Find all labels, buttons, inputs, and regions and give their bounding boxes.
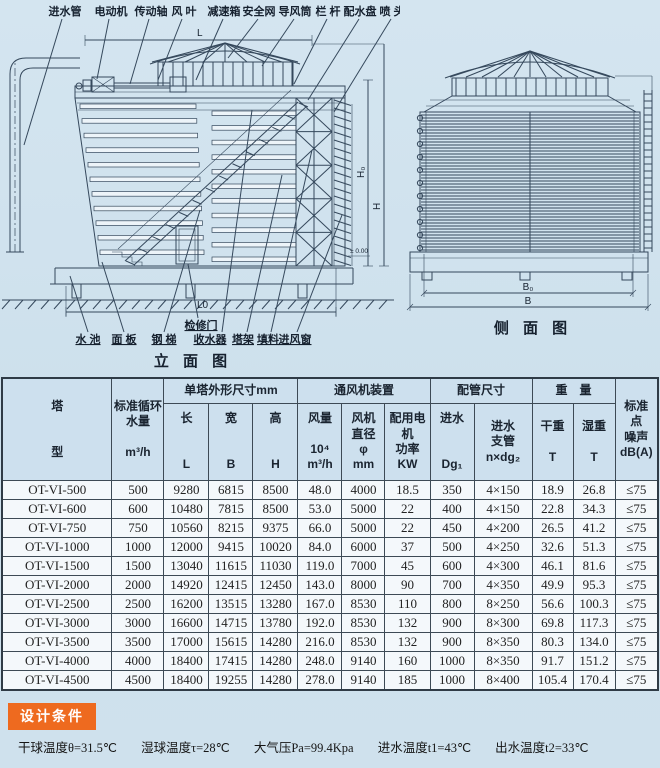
table-cell: 1000	[112, 538, 164, 557]
condition-outlet-temp: 出水温度t2=33℃	[495, 741, 588, 755]
table-cell: 132	[385, 633, 430, 652]
table-cell: 167.0	[298, 595, 342, 614]
table-cell: 350	[430, 481, 474, 500]
table-cell: 8500	[253, 481, 298, 500]
table-cell: 41.2	[573, 519, 615, 538]
table-cell: 11030	[253, 557, 298, 576]
table-cell: 56.6	[532, 595, 573, 614]
label-air-duct: 导风筒	[279, 4, 312, 18]
technical-drawings: L	[0, 0, 660, 377]
table-cell: 12000	[164, 538, 209, 557]
table-cell: ≤75	[615, 557, 658, 576]
table-cell: ≤75	[615, 538, 658, 557]
table-cell: 17415	[209, 652, 253, 671]
table-cell: OT-VI-4000	[2, 652, 112, 671]
table-cell: 9280	[164, 481, 209, 500]
table-cell: 119.0	[298, 557, 342, 576]
table-cell: 134.0	[573, 633, 615, 652]
table-cell: 7000	[342, 557, 385, 576]
group-header-piping: 配管尺寸	[430, 378, 532, 404]
table-cell: 8530	[342, 633, 385, 652]
table-cell: 18400	[164, 652, 209, 671]
col-header-fan-diameter: 风机 直径 φ mm	[342, 404, 385, 481]
table-cell: 91.7	[532, 652, 573, 671]
condition-pressure: 大气压Pa=99.4Kpa	[254, 741, 354, 755]
table-row: OT-VI-20002000149201241512450143.0800090…	[2, 576, 658, 595]
label-steel-ladder: 钢 梯	[151, 332, 176, 346]
table-cell: 48.0	[298, 481, 342, 500]
table-cell: 110	[385, 595, 430, 614]
table-cell: 14280	[253, 671, 298, 691]
table-cell: OT-VI-1000	[2, 538, 112, 557]
label-spray-nozzle: 喷 头	[379, 4, 400, 18]
group-header-weight: 重 量	[532, 378, 615, 404]
table-cell: 117.3	[573, 614, 615, 633]
table-cell: 14280	[253, 652, 298, 671]
table-cell: 100.3	[573, 595, 615, 614]
elevation-caption: 立 面 图	[154, 352, 232, 370]
table-cell: 4500	[112, 671, 164, 691]
table-cell: 5000	[342, 500, 385, 519]
table-cell: 8530	[342, 614, 385, 633]
table-cell: 15615	[209, 633, 253, 652]
condition-dry-bulb: 干球温度θ=31.5℃	[18, 741, 117, 755]
table-cell: 81.6	[573, 557, 615, 576]
table-cell: 26.8	[573, 481, 615, 500]
table-cell: 151.2	[573, 652, 615, 671]
table-cell: 18.5	[385, 481, 430, 500]
table-cell: 1000	[430, 671, 474, 691]
table-cell: 51.3	[573, 538, 615, 557]
table-cell: 6000	[342, 538, 385, 557]
label-air-inlet: 进风窗	[279, 332, 312, 346]
col-header-inlet: 进水 Dg₁	[430, 404, 474, 481]
level-mark: ± 0.00	[350, 248, 368, 255]
label-panel: 面 板	[111, 332, 137, 346]
table-cell: 49.9	[532, 576, 573, 595]
table-cell: 22	[385, 500, 430, 519]
table-cell: 750	[112, 519, 164, 538]
table-cell: 143.0	[298, 576, 342, 595]
table-cell: 160	[385, 652, 430, 671]
label-access-door: 检修门	[185, 318, 218, 332]
table-row: OT-VI-15001500130401161511030119.0700045…	[2, 557, 658, 576]
table-cell: 19255	[209, 671, 253, 691]
table-cell: 84.0	[298, 538, 342, 557]
table-cell: 4×300	[474, 557, 532, 576]
table-cell: 14280	[253, 633, 298, 652]
table-row: OT-VI-45004500184001925514280278.0914018…	[2, 671, 658, 691]
table-cell: 8500	[253, 500, 298, 519]
condition-inlet-temp: 进水温度t1=43℃	[378, 741, 471, 755]
table-cell: 192.0	[298, 614, 342, 633]
table-cell: 13780	[253, 614, 298, 633]
table-cell: 13515	[209, 595, 253, 614]
col-header-tower-type: 塔 型	[2, 378, 112, 481]
table-cell: 12450	[253, 576, 298, 595]
label-motor: 电动机	[95, 4, 128, 18]
table-cell: ≤75	[615, 633, 658, 652]
dim-label-L: L	[197, 28, 203, 39]
table-cell: 46.1	[532, 557, 573, 576]
table-cell: 500	[430, 538, 474, 557]
col-header-length: 长 L	[164, 404, 209, 481]
label-water-pool: 水 池	[75, 332, 100, 346]
table-cell: 400	[430, 500, 474, 519]
side-ladder	[644, 90, 652, 252]
table-cell: 8×300	[474, 614, 532, 633]
col-header-flow-rate: 标准循环 水量 m³/h	[112, 378, 164, 481]
table-cell: 8×250	[474, 595, 532, 614]
table-cell: 69.8	[532, 614, 573, 633]
table-cell: 1000	[430, 652, 474, 671]
table-cell: 12415	[209, 576, 253, 595]
table-cell: 3500	[112, 633, 164, 652]
spec-table-header: 塔 型 标准循环 水量 m³/h 单塔外形尺寸mm 通风机装置 配管尺寸 重 量…	[2, 378, 658, 481]
table-cell: 9140	[342, 671, 385, 691]
table-cell: ≤75	[615, 671, 658, 691]
table-row: OT-VI-35003500170001561514280216.0853013…	[2, 633, 658, 652]
table-cell: OT-VI-3500	[2, 633, 112, 652]
table-cell: 600	[112, 500, 164, 519]
spec-table-body: OT-VI-50050092806815850048.0400018.53504…	[2, 481, 658, 691]
table-cell: 8×350	[474, 633, 532, 652]
table-cell: 16200	[164, 595, 209, 614]
table-row: OT-VI-25002500162001351513280167.0853011…	[2, 595, 658, 614]
table-cell: 450	[430, 519, 474, 538]
table-cell: 13040	[164, 557, 209, 576]
table-cell: 8215	[209, 519, 253, 538]
dim-label-L0: L0	[197, 300, 209, 311]
label-tower-frame: 塔架	[232, 332, 254, 346]
col-header-motor-power: 配用电 机 功率 KW	[385, 404, 430, 481]
label-drift-eliminator: 收水器	[194, 332, 228, 346]
table-cell: 2000	[112, 576, 164, 595]
table-cell: 600	[430, 557, 474, 576]
table-cell: 4×150	[474, 500, 532, 519]
table-cell: 900	[430, 614, 474, 633]
table-cell: 4000	[112, 652, 164, 671]
table-cell: OT-VI-2500	[2, 595, 112, 614]
table-cell: ≤75	[615, 652, 658, 671]
design-conditions-badge: 设计条件	[8, 703, 96, 730]
table-cell: 13280	[253, 595, 298, 614]
table-cell: 8530	[342, 595, 385, 614]
table-row: OT-VI-100010001200094151002084.060003750…	[2, 538, 658, 557]
table-cell: 248.0	[298, 652, 342, 671]
dim-label-B: B	[525, 296, 532, 307]
group-header-fan: 通风机装置	[298, 378, 430, 404]
table-cell: OT-VI-4500	[2, 671, 112, 691]
table-cell: 16600	[164, 614, 209, 633]
table-cell: ≤75	[615, 576, 658, 595]
table-cell: OT-VI-500	[2, 481, 112, 500]
elevation-view-drawing: L	[0, 0, 400, 377]
table-row: OT-VI-750750105608215937566.05000224504×…	[2, 519, 658, 538]
dim-label-B0: B₀	[523, 282, 534, 293]
table-cell: 10020	[253, 538, 298, 557]
group-header-dimensions: 单塔外形尺寸mm	[164, 378, 298, 404]
condition-wet-bulb: 湿球温度τ=28℃	[141, 741, 230, 755]
label-fill: 填料	[257, 332, 279, 346]
table-cell: ≤75	[615, 614, 658, 633]
table-cell: 34.3	[573, 500, 615, 519]
spec-table: 塔 型 标准循环 水量 m³/h 单塔外形尺寸mm 通风机装置 配管尺寸 重 量…	[1, 377, 659, 691]
table-cell: 53.0	[298, 500, 342, 519]
table-cell: 8×350	[474, 652, 532, 671]
table-cell: 185	[385, 671, 430, 691]
table-cell: 26.5	[532, 519, 573, 538]
table-cell: 22.8	[532, 500, 573, 519]
table-cell: 8×400	[474, 671, 532, 691]
dim-label-H0: H₀	[356, 167, 367, 178]
label-fan-blade: 风 叶	[171, 4, 196, 18]
label-drive-shaft: 传动轴	[134, 4, 168, 18]
table-cell: OT-VI-1500	[2, 557, 112, 576]
table-cell: 10480	[164, 500, 209, 519]
table-cell: 132	[385, 614, 430, 633]
table-row: OT-VI-30003000166001471513780192.0853013…	[2, 614, 658, 633]
table-row: OT-VI-50050092806815850048.0400018.53504…	[2, 481, 658, 500]
table-cell: 9140	[342, 652, 385, 671]
table-cell: 14920	[164, 576, 209, 595]
table-cell: 800	[430, 595, 474, 614]
table-cell: 900	[430, 633, 474, 652]
table-cell: 278.0	[298, 671, 342, 691]
table-cell: 216.0	[298, 633, 342, 652]
table-cell: 2500	[112, 595, 164, 614]
table-cell: 7815	[209, 500, 253, 519]
table-cell: OT-VI-750	[2, 519, 112, 538]
label-water-tray: 配水盘	[344, 4, 377, 18]
table-cell: OT-VI-600	[2, 500, 112, 519]
col-header-height: 高 H	[253, 404, 298, 481]
table-cell: 6815	[209, 481, 253, 500]
table-cell: 4×200	[474, 519, 532, 538]
table-row: OT-VI-40004000184001741514280248.0914016…	[2, 652, 658, 671]
side-caption: 侧 面 图	[494, 319, 572, 337]
table-cell: 95.3	[573, 576, 615, 595]
table-cell: OT-VI-2000	[2, 576, 112, 595]
col-header-width: 宽 B	[209, 404, 253, 481]
table-cell: 700	[430, 576, 474, 595]
table-cell: 4×350	[474, 576, 532, 595]
access-door	[176, 226, 198, 264]
side-basin	[410, 252, 648, 280]
col-header-dry-weight: 干重 T	[532, 404, 573, 481]
table-cell: ≤75	[615, 519, 658, 538]
table-cell: OT-VI-3000	[2, 614, 112, 633]
table-cell: 45	[385, 557, 430, 576]
col-header-wet-weight: 湿重 T	[573, 404, 615, 481]
table-cell: ≤75	[615, 500, 658, 519]
col-header-noise: 标准 点 噪声 dB(A)	[615, 378, 658, 481]
table-cell: 8000	[342, 576, 385, 595]
table-cell: 9375	[253, 519, 298, 538]
table-cell: 10560	[164, 519, 209, 538]
table-row: OT-VI-600600104807815850053.05000224004×…	[2, 500, 658, 519]
table-cell: 500	[112, 481, 164, 500]
dim-label-H: H	[372, 203, 383, 210]
table-cell: 11615	[209, 557, 253, 576]
table-cell: 66.0	[298, 519, 342, 538]
col-header-branch-pipe: 进水 支管 n×dg₂	[474, 404, 532, 481]
table-cell: 1500	[112, 557, 164, 576]
table-cell: ≤75	[615, 595, 658, 614]
table-cell: 22	[385, 519, 430, 538]
table-cell: 32.6	[532, 538, 573, 557]
table-cell: 3000	[112, 614, 164, 633]
table-cell: 5000	[342, 519, 385, 538]
label-gearbox: 减速箱	[208, 4, 241, 18]
design-conditions-text: 干球温度θ=31.5℃ 湿球温度τ=28℃ 大气压Pa=99.4Kpa 进水温度…	[18, 737, 660, 756]
label-railing: 栏 杆	[315, 4, 340, 18]
table-cell: 17000	[164, 633, 209, 652]
air-inlet-louvers	[334, 100, 351, 266]
design-conditions-section: 设计条件 干球温度θ=31.5℃ 湿球温度τ=28℃ 大气压Pa=99.4Kpa…	[8, 703, 660, 756]
table-cell: 170.4	[573, 671, 615, 691]
label-inlet-pipe: 进水管	[49, 4, 82, 18]
table-cell: 9415	[209, 538, 253, 557]
table-cell: 80.3	[532, 633, 573, 652]
label-safety-net: 安全网	[243, 4, 276, 18]
water-basin	[50, 268, 353, 298]
table-cell: 4×250	[474, 538, 532, 557]
table-cell: 4×150	[474, 481, 532, 500]
table-cell: 90	[385, 576, 430, 595]
table-cell: 37	[385, 538, 430, 557]
table-cell: 18400	[164, 671, 209, 691]
col-header-airflow: 风量 10⁴ m³/h	[298, 404, 342, 481]
table-cell: 18.9	[532, 481, 573, 500]
table-cell: 105.4	[532, 671, 573, 691]
table-cell: 14715	[209, 614, 253, 633]
side-view-drawing: B₀ B 侧 面 图	[400, 0, 660, 377]
table-cell: ≤75	[615, 481, 658, 500]
table-cell: 4000	[342, 481, 385, 500]
